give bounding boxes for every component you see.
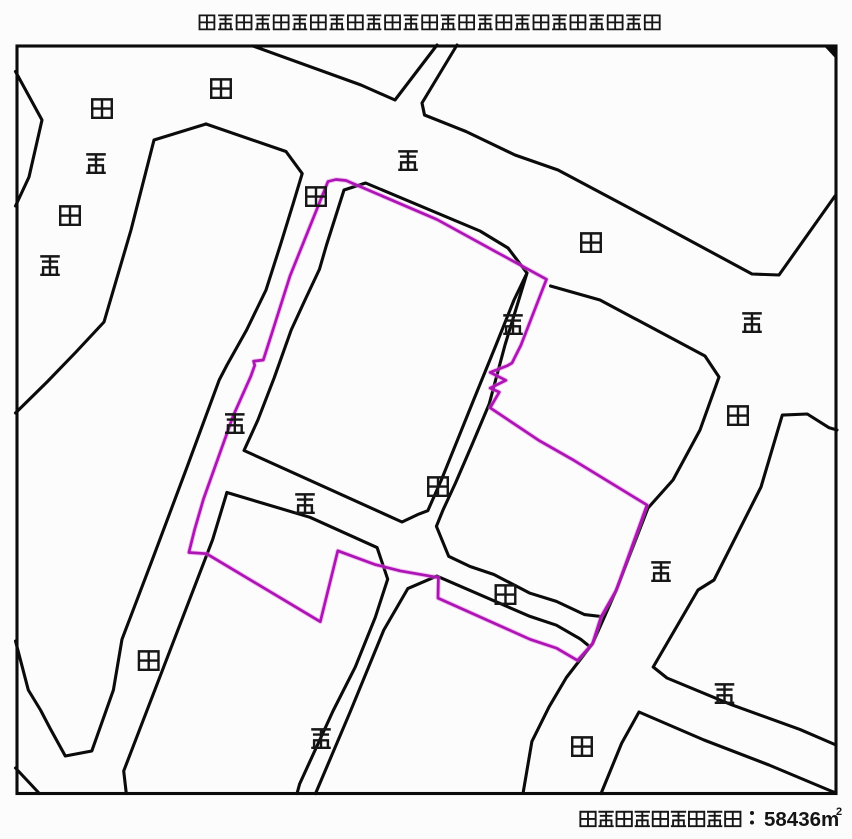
svg-text:2: 2	[836, 806, 842, 818]
svg-text:58436m: 58436m	[764, 808, 839, 831]
